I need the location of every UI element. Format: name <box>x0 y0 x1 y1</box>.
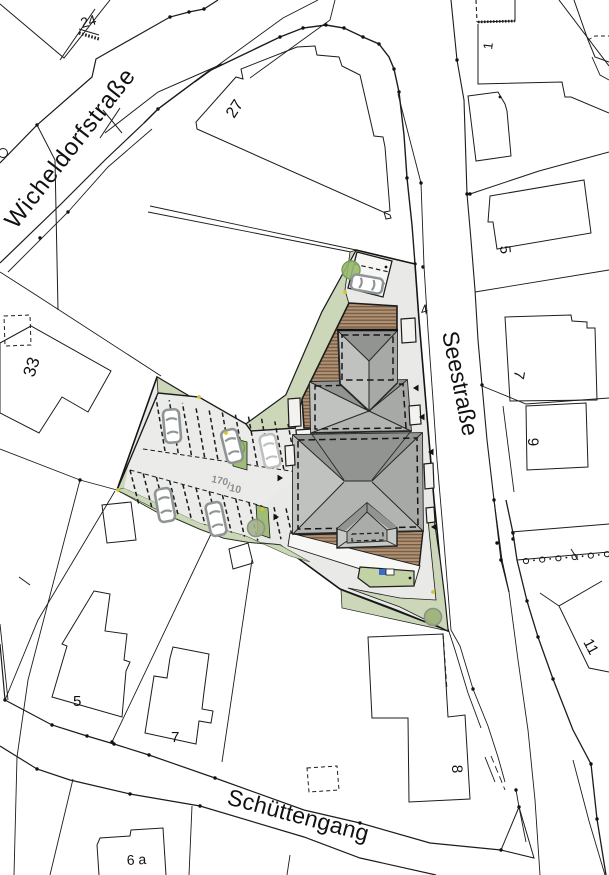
svg-text:9: 9 <box>524 438 541 447</box>
svg-text:6 a: 6 a <box>126 851 146 868</box>
svg-text:5: 5 <box>73 693 81 710</box>
svg-text:8: 8 <box>448 765 465 774</box>
svg-text:7: 7 <box>171 729 179 746</box>
svg-text:5: 5 <box>496 245 514 255</box>
